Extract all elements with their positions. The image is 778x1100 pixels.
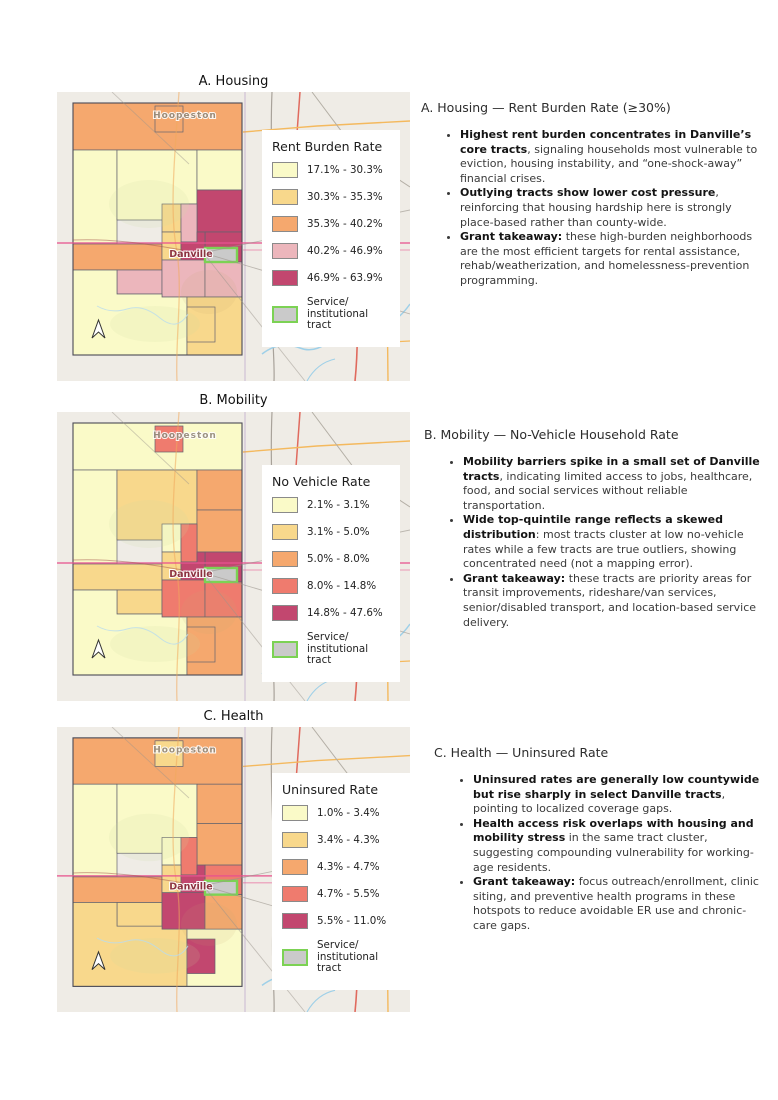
bullet-item: Health access risk overlaps with housing… <box>473 817 760 875</box>
legend-row: 2.1% - 3.1% <box>272 497 390 513</box>
legend-label: 46.9% - 63.9% <box>307 272 383 284</box>
legend-swatch-class4 <box>272 578 298 594</box>
legend-label-service: Service/institutional tract <box>317 940 400 975</box>
bullet-item: Grant takeaway: focus outreach/enrollmen… <box>473 875 760 933</box>
legend-swatch-service <box>272 641 298 658</box>
annotation-health: C. Health — Uninsured Rate Uninsured rat… <box>434 745 760 934</box>
tract-belt-west <box>117 270 162 294</box>
tract-northeast-upper <box>197 470 242 510</box>
annotation-heading: A. Housing — Rent Burden Rate (≥30%) <box>421 100 759 115</box>
legend-label: 14.8% - 47.6% <box>307 607 383 619</box>
tan-tint <box>181 590 237 634</box>
legend-swatch-class1 <box>272 497 298 513</box>
legend-title: No Vehicle Rate <box>272 474 390 489</box>
tan-tint <box>181 270 237 314</box>
legend-label: 40.2% - 46.9% <box>307 245 383 257</box>
bullet-bold: Grant takeaway: <box>473 875 575 888</box>
bullet-item: Grant takeaway: these high-burden neighb… <box>460 230 759 288</box>
map-title-health: C. Health <box>57 709 410 724</box>
legend-row: 35.3% - 40.2% <box>272 216 390 232</box>
bullet-item: Outlying tracts show lower cost pressure… <box>460 186 759 230</box>
legend-swatch-class3 <box>272 551 298 567</box>
service-label-line1: Service/ <box>307 631 349 643</box>
bullet-bold: Outlying tracts show lower cost pressure <box>460 186 715 199</box>
service-label-line1: Service/ <box>317 939 359 951</box>
bullet-item: Mobility barriers spike in a small set o… <box>463 455 762 513</box>
bullet-bold: Uninsured rates are generally low county… <box>473 773 759 801</box>
legend-row-service: Service/institutional tract <box>272 297 390 332</box>
legend-label: 4.3% - 4.7% <box>317 861 380 873</box>
legend-row: 8.0% - 14.8% <box>272 578 390 594</box>
legend-row: 40.2% - 46.9% <box>272 243 390 259</box>
tract-northeast-upper <box>197 150 242 190</box>
legend-row: 14.8% - 47.6% <box>272 605 390 621</box>
legend-housing: Rent Burden Rate 17.1% - 30.3% 30.3% - 3… <box>262 130 400 347</box>
legend-label: 5.5% - 11.0% <box>317 915 386 927</box>
tract-west-band <box>73 877 162 903</box>
map-title-housing: A. Housing <box>57 74 410 89</box>
legend-health: Uninsured Rate 1.0% - 3.4% 3.4% - 4.3% 4… <box>272 773 410 990</box>
legend-mobility: No Vehicle Rate 2.1% - 3.1% 3.1% - 5.0% … <box>262 465 400 682</box>
tract-west-band <box>73 244 162 270</box>
tract-belt-west <box>117 903 162 927</box>
bullet-item: Uninsured rates are generally low county… <box>473 773 760 817</box>
legend-row-service: Service/institutional tract <box>282 940 400 975</box>
service-label-line2: institutional tract <box>317 951 378 975</box>
service-label-line1: Service/ <box>307 296 349 308</box>
green-tint <box>109 814 189 861</box>
city-label-hoopeston: Hoopeston <box>153 111 217 121</box>
legend-label: 2.1% - 3.1% <box>307 499 370 511</box>
green-tint <box>110 626 200 662</box>
tract-northeast-core <box>197 824 242 865</box>
legend-row: 30.3% - 35.3% <box>272 189 390 205</box>
legend-row: 5.0% - 8.0% <box>272 551 390 567</box>
legend-row: 1.0% - 3.4% <box>282 805 400 821</box>
annotation-housing: A. Housing — Rent Burden Rate (≥30%) Hig… <box>421 100 759 289</box>
city-label-danville: Danville <box>169 569 212 580</box>
legend-swatch-service <box>282 949 308 966</box>
city-label-hoopeston: Hoopeston <box>153 746 217 756</box>
green-tint <box>109 500 189 548</box>
legend-swatch-class5 <box>272 270 298 286</box>
legend-swatch-class4 <box>282 886 308 902</box>
annotation-mobility: B. Mobility — No-Vehicle Household Rate … <box>424 427 762 630</box>
legend-row-service: Service/institutional tract <box>272 632 390 667</box>
bullet-item: Wide top-quintile range reflects a skewe… <box>463 513 762 571</box>
annotation-heading: B. Mobility — No-Vehicle Household Rate <box>424 427 762 442</box>
bullet-item: Highest rent burden concentrates in Danv… <box>460 128 759 186</box>
legend-row: 4.3% - 4.7% <box>282 859 400 875</box>
city-label-danville: Danville <box>169 882 212 893</box>
legend-label: 17.1% - 30.3% <box>307 164 383 176</box>
legend-row: 3.4% - 4.3% <box>282 832 400 848</box>
tract-northeast-upper <box>197 784 242 823</box>
bullet-list: Highest rent burden concentrates in Danv… <box>421 128 759 289</box>
tract-west-band <box>73 564 162 590</box>
legend-swatch-class2 <box>272 524 298 540</box>
legend-label: 5.0% - 8.0% <box>307 553 370 565</box>
legend-label: 3.4% - 4.3% <box>317 834 380 846</box>
tract-west-upper <box>73 150 117 244</box>
report-page: A. Housing <box>0 0 778 1100</box>
legend-row: 3.1% - 5.0% <box>272 524 390 540</box>
tract-northeast-core <box>197 510 242 552</box>
tan-tint <box>181 903 237 946</box>
bullet-bold: Grant takeaway: <box>463 572 565 585</box>
legend-label: 1.0% - 3.4% <box>317 807 380 819</box>
map-title-mobility: B. Mobility <box>57 393 410 408</box>
tract-belt-west <box>117 590 162 614</box>
legend-swatch-class3 <box>282 859 308 875</box>
legend-label-service: Service/institutional tract <box>307 297 390 332</box>
legend-swatch-class1 <box>282 805 308 821</box>
bullet-rest: , indicating limited access to jobs, hea… <box>463 470 752 512</box>
legend-title: Uninsured Rate <box>282 782 400 797</box>
legend-label: 30.3% - 35.3% <box>307 191 383 203</box>
legend-swatch-class2 <box>282 832 308 848</box>
legend-label: 35.3% - 40.2% <box>307 218 383 230</box>
legend-row: 46.9% - 63.9% <box>272 270 390 286</box>
green-tint <box>110 306 200 342</box>
legend-swatch-class3 <box>272 216 298 232</box>
legend-swatch-class5 <box>282 913 308 929</box>
service-label-line2: institutional tract <box>307 308 368 332</box>
legend-swatch-class4 <box>272 243 298 259</box>
annotation-heading: C. Health — Uninsured Rate <box>434 745 760 760</box>
bullet-list: Uninsured rates are generally low county… <box>434 773 760 934</box>
legend-swatch-class2 <box>272 189 298 205</box>
bullet-bold: Grant takeaway: <box>460 230 562 243</box>
legend-swatch-class1 <box>272 162 298 178</box>
green-tint <box>109 180 189 228</box>
tract-northeast-core <box>197 190 242 232</box>
legend-title: Rent Burden Rate <box>272 139 390 154</box>
city-label-hoopeston: Hoopeston <box>153 431 217 441</box>
legend-label-service: Service/institutional tract <box>307 632 390 667</box>
legend-row: 4.7% - 5.5% <box>282 886 400 902</box>
bullet-list: Mobility barriers spike in a small set o… <box>424 455 762 630</box>
legend-label: 4.7% - 5.5% <box>317 888 380 900</box>
tract-west-upper <box>73 470 117 564</box>
tract-west-upper <box>73 784 117 877</box>
service-label-line2: institutional tract <box>307 643 368 667</box>
legend-swatch-service <box>272 306 298 323</box>
legend-swatch-class5 <box>272 605 298 621</box>
legend-row: 17.1% - 30.3% <box>272 162 390 178</box>
legend-label: 3.1% - 5.0% <box>307 526 370 538</box>
city-label-danville: Danville <box>169 249 212 260</box>
legend-row: 5.5% - 11.0% <box>282 913 400 929</box>
bullet-item: Grant takeaway: these tracts are priorit… <box>463 572 762 630</box>
legend-label: 8.0% - 14.8% <box>307 580 376 592</box>
green-tint <box>110 938 200 974</box>
